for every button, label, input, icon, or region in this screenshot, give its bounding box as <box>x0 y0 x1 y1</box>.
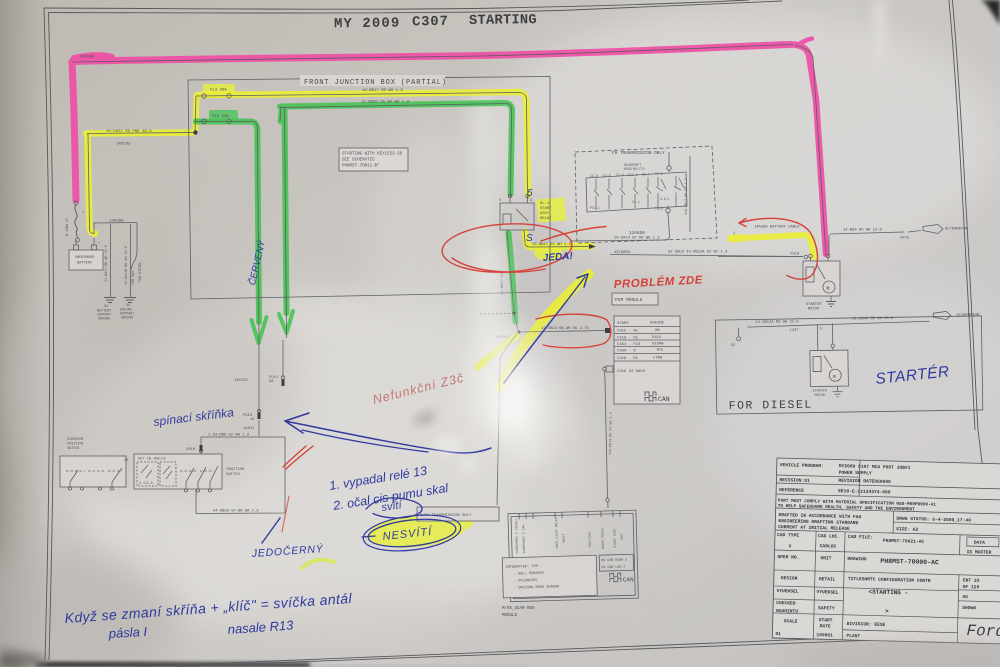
svg-text:START: START <box>617 322 629 326</box>
svg-text:SWITCH: SWITCH <box>226 473 240 477</box>
svg-text:A2: A2 <box>731 344 736 348</box>
svg-text:KL.1: KL.1 <box>540 202 550 206</box>
svg-text:START LOCK: START LOCK <box>612 528 617 547</box>
svg-text:G8: G8 <box>126 304 130 308</box>
svg-text:CAN: CAN <box>623 576 634 583</box>
svg-text:SHOWN: SHOWN <box>962 605 976 611</box>
svg-text:C418 - D1: C418 - D1 <box>617 357 639 361</box>
svg-text:SWITCH: SWITCH <box>67 447 79 451</box>
svg-text:C418 34 DWLD: C418 34 DWLD <box>617 370 646 374</box>
svg-text:14-B84 RD WH 13.0: 14-B84 RD WH 13.0 <box>843 229 882 233</box>
svg-text:REVISION:01: REVISION:01 <box>779 477 810 484</box>
svg-text:31A-DB13 BK GY WH 1.3: 31A-DB13 BK GY WH 1.3 <box>609 412 614 455</box>
svg-text:12A650: 12A650 <box>629 231 645 236</box>
svg-text:MY 2009: MY 2009 <box>334 16 401 32</box>
svg-text:M: M <box>827 286 830 292</box>
svg-text:+: + <box>82 211 84 215</box>
svg-text:SIGMA: SIGMA <box>652 343 664 347</box>
svg-text:21-DA11 BK WH 19.0: 21-DA11 BK WH 19.0 <box>105 245 109 282</box>
svg-text:C1-8: C1-8 <box>590 174 598 178</box>
svg-text:ALTERNATOR: ALTERNATOR <box>945 228 969 232</box>
svg-text:01: 01 <box>775 631 781 637</box>
svg-text:19-DB13A RD WH 25.0: 19-DB13A RD WH 25.0 <box>755 320 799 325</box>
svg-text:1 83-DB9 G2 WA 1.3: 1 83-DB9 G2 WA 1.3 <box>208 434 250 438</box>
svg-text:C307: C307 <box>412 15 449 31</box>
svg-text:CADLOC: CADLOC <box>820 543 837 549</box>
svg-text:IGNITION: IGNITION <box>588 532 592 547</box>
svg-text:ALTERNATOR: ALTERNATOR <box>956 313 980 317</box>
svg-text:MODS: MODS <box>624 167 632 171</box>
svg-text:14: 14 <box>250 418 255 422</box>
svg-text:CAD LOC.: CAD LOC. <box>818 533 840 540</box>
svg-text:UNIT: UNIT <box>820 555 831 561</box>
svg-text:137A650: 137A650 <box>614 251 631 255</box>
svg-text:11-BB30 OG BK WH 1.3: 11-BB30 OG BK WH 1.3 <box>361 101 410 105</box>
svg-text:C1-5: C1-5 <box>603 174 611 178</box>
svg-text:ENGINE: ENGINE <box>650 322 665 326</box>
svg-text:BATTERY: BATTERY <box>77 262 93 266</box>
svg-text:14A11: 14A11 <box>243 427 255 431</box>
svg-text:SIZE: A2: SIZE: A2 <box>896 526 918 533</box>
svg-text:10-DA14 GY RD WH 1.3: 10-DA14 GY RD WH 1.3 <box>614 237 660 241</box>
svg-text:44-DB29 GY-BK WA 1.3: 44-DB29 GY-BK WA 1.3 <box>213 510 259 514</box>
svg-text:GROUND: GROUND <box>121 317 133 321</box>
svg-text:F8 TRANSMISSION ONLY: F8 TRANSMISSION ONLY <box>612 151 665 156</box>
svg-text:START: START <box>540 207 552 211</box>
svg-text:PLANT: PLANT <box>846 633 860 639</box>
svg-text:ENT 33: ENT 33 <box>963 577 980 583</box>
svg-text:PC1-1: PC1-1 <box>590 206 600 210</box>
svg-text:AS: AS <box>962 594 968 600</box>
svg-text:OF 129: OF 129 <box>963 584 980 590</box>
svg-text:GROUND: GROUND <box>98 318 110 322</box>
svg-text:DATE: DATE <box>820 623 831 629</box>
svg-text:TP3: TP3 <box>656 349 664 353</box>
svg-text:ASSY: ASSY <box>540 212 550 216</box>
svg-text:G1: G1 <box>104 305 108 309</box>
svg-text:DATA: DATA <box>974 540 985 546</box>
svg-text:C#75: C#75 <box>900 237 910 241</box>
svg-text:HS CAN HIGH 2: HS CAN HIGH 2 <box>601 557 627 562</box>
svg-text:SEE SCHEMATIC: SEE SCHEMATIC <box>342 159 375 163</box>
svg-text:C2-1: C2-1 <box>655 172 663 176</box>
svg-text:DRAWING: DRAWING <box>847 556 867 563</box>
svg-text:B-14BA WT: B-14BA WT <box>66 218 70 236</box>
svg-text:BACK LIGHT RELAY: BACK LIGHT RELAY <box>554 518 559 549</box>
svg-text:FL3 20A: FL3 20A <box>210 89 227 93</box>
svg-text:A1-7: A1-7 <box>642 172 650 176</box>
svg-text:SAFETY: SAFETY <box>818 605 835 611</box>
svg-text:0W: 0W <box>655 329 660 333</box>
svg-text:M: M <box>833 374 836 380</box>
svg-text:C418 - D1: C418 - D1 <box>617 337 639 341</box>
svg-text:POWER SUPPLY: POWER SUPPLY <box>839 470 872 477</box>
svg-text:FOR DIESEL: FOR DIESEL <box>729 399 813 413</box>
svg-text:CAD FILE:: CAD FILE: <box>848 534 873 541</box>
svg-text:D412: D412 <box>652 336 662 340</box>
svg-text:DETAIL: DETAIL <box>819 576 836 582</box>
svg-text:S: S <box>526 233 533 244</box>
svg-text:PCM MODULE: PCM MODULE <box>615 297 643 303</box>
svg-text:POSITION: POSITION <box>67 443 83 447</box>
svg-text:F19 20A: F19 20A <box>212 115 229 119</box>
svg-text:STARTER: STARTER <box>806 303 822 307</box>
svg-text:KEY IN IGN/CZ: KEY IN IGN/CZ <box>138 457 167 462</box>
svg-text:NSAHINTU: NSAHINTU <box>776 608 798 615</box>
svg-text:REFERENCE: REFERENCE <box>779 487 804 494</box>
svg-text:SIDEDOOR: SIDEDOOR <box>67 438 83 442</box>
svg-text:MS/770: MS/770 <box>633 167 645 171</box>
svg-text:CURRENMGC 1 CAN: CURRENMGC 1 CAN <box>521 524 526 553</box>
svg-text:31A-BB13 BK RD 1.3: 31A-BB13 BK RD 1.3 <box>685 178 689 215</box>
svg-text:CAD TYPE: CAD TYPE <box>777 532 799 539</box>
svg-text:GND: GND <box>620 534 624 540</box>
svg-text:148733: 148733 <box>116 143 131 147</box>
svg-text:SCALE: SCALE <box>784 618 798 624</box>
svg-text:BRAKE PRESS.: BRAKE PRESS. <box>600 526 605 549</box>
svg-text:10-BB17 RD WH 1.3: 10-BB17 RD WH 1.3 <box>362 89 403 93</box>
svg-text:Ford: Ford <box>966 622 1000 641</box>
svg-text:OPER NO.: OPER NO. <box>777 554 799 561</box>
svg-text:148733: 148733 <box>234 379 248 383</box>
svg-text:STARTING WITH KEYLESS GO: STARTING WITH KEYLESS GO <box>342 153 403 157</box>
svg-text:21-B84A RD WH 25.0: 21-B84A RD WH 25.0 <box>852 317 894 322</box>
svg-text:VBATT: VBATT <box>562 533 566 543</box>
svg-text:MOTOR: MOTOR <box>815 394 825 398</box>
svg-text:LTRK: LTRK <box>653 357 663 361</box>
svg-text:IGNITION: IGNITION <box>226 468 244 472</box>
svg-text:HS CAN LOW 2: HS CAN LOW 2 <box>601 564 625 569</box>
svg-text:VYUEKSEL: VYUEKSEL <box>776 588 798 595</box>
svg-text:100901: 100901 <box>816 632 833 638</box>
svg-text:STARTING: STARTING <box>469 13 537 29</box>
svg-text:DESIGN: DESIGN <box>781 575 798 581</box>
svg-text:C1-1: C1-1 <box>632 200 640 204</box>
svg-text:31-DA11B BK WH 19.0: 31-DA11B BK WH 19.0 <box>125 246 129 285</box>
svg-text:C418: C418 <box>655 207 663 211</box>
svg-text:PH8M5T-70011-B*: PH8M5T-70011-B* <box>342 164 380 169</box>
svg-text:1 C1-3: 1 C1-3 <box>139 482 153 486</box>
svg-text:C451 - F23: C451 - F23 <box>617 343 641 347</box>
svg-text:: SOLENOIDS: : SOLENOIDS <box>514 579 538 584</box>
svg-text:31-DB13 BK-WH OG 2.75: 31-DB13 BK-WH OG 2.75 <box>541 327 590 331</box>
svg-text:FOR GAS: FOR GAS <box>132 271 136 285</box>
svg-text:DC1-4: DC1-4 <box>628 173 638 177</box>
svg-text:JEDA!: JEDA! <box>542 251 573 264</box>
svg-text:MODULE: MODULE <box>502 614 518 618</box>
svg-text:FRONT JUNCTION BOX (PARTIAL): FRONT JUNCTION BOX (PARTIAL) <box>304 79 447 87</box>
svg-text:- HALL SENSORS: - HALL SENSORS <box>514 572 544 577</box>
svg-text:X: X <box>789 543 792 549</box>
svg-text:<STARTING -: <STARTING - <box>868 588 908 596</box>
svg-text:PH8M5T-70021-AC: PH8M5T-70021-AC <box>883 538 925 545</box>
svg-text:C437: C437 <box>790 329 799 333</box>
svg-text:pásla I: pásla I <box>107 624 147 641</box>
svg-text:UNDERHOOD: UNDERHOOD <box>75 256 94 260</box>
svg-text:12: 12 <box>124 459 128 463</box>
svg-text:DIVISION: EESE: DIVISION: EESE <box>847 621 886 628</box>
svg-text:MOTOR: MOTOR <box>808 308 820 312</box>
svg-text:14A280 BATTERY CABLE: 14A280 BATTERY CABLE <box>754 226 800 230</box>
svg-text:FOR DIESEL: FOR DIESEL <box>139 262 143 282</box>
svg-text:C610: C610 <box>186 448 196 452</box>
svg-text:10-BB17 GY WH 1.3: 10-BB17 GY WH 1.3 <box>532 243 571 247</box>
svg-text:5: 5 <box>527 188 533 199</box>
svg-text:82 DWLD 44-DB13A GY WT 1.3: 82 DWLD 44-DB13A GY WT 1.3 <box>668 251 728 255</box>
svg-text:VYUEKSEL: VYUEKSEL <box>816 589 838 596</box>
svg-text:G2: G2 <box>269 380 274 384</box>
svg-text:CAN: CAN <box>658 396 670 403</box>
svg-text:14B286: 14B286 <box>80 56 95 60</box>
svg-text:START: START <box>819 617 833 623</box>
svg-text:+: + <box>98 242 100 246</box>
svg-text:C318: C318 <box>790 253 800 257</box>
svg-text:2-8.1: 2-8.1 <box>660 197 670 201</box>
svg-text:C415 - A1: C415 - A1 <box>617 330 639 334</box>
svg-text:M/96_GEAR BOX: M/96_GEAR BOX <box>502 606 535 611</box>
svg-text:C1-4: C1-4 <box>616 173 624 177</box>
svg-text:VEHICLE PROGRAM:: VEHICLE PROGRAM: <box>780 462 824 469</box>
svg-text:IS MASTER: IS MASTER <box>967 549 992 556</box>
svg-text:C490 - 9: C490 - 9 <box>617 350 636 354</box>
svg-text:>: > <box>885 608 889 615</box>
svg-text:RELAY: RELAY <box>540 217 552 221</box>
svg-text:CHECKED: CHECKED <box>776 600 796 607</box>
